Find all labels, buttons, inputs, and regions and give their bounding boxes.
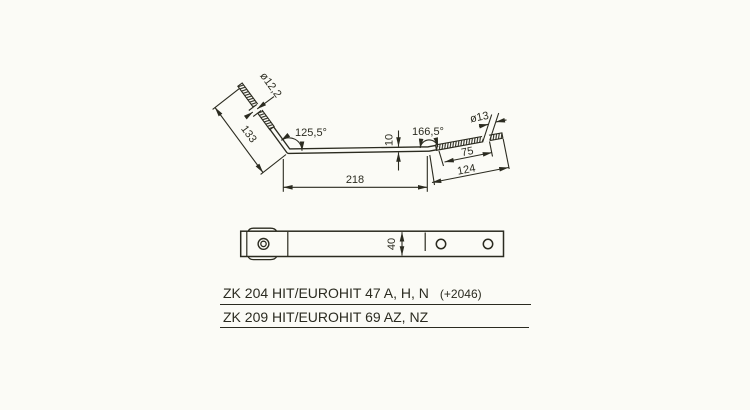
hole-right (483, 239, 492, 248)
dim-label-10: 10 (384, 134, 396, 146)
catalog-line-zk209-text: ZK 209 HIT/EUROHIT 69 AZ, NZ (223, 309, 428, 325)
angle-label-125-5: 125,5° (295, 127, 327, 139)
catalog-line-zk209: ZK 209 HIT/EUROHIT 69 AZ, NZ (220, 310, 529, 328)
drawing-canvas: 133 ø12,2 125,5° 10 218 166,5° (0, 0, 750, 410)
dim-label-dia12-2: ø12,2 (257, 70, 283, 100)
catalog-line-zk204-suffix: (+2046) (440, 287, 482, 301)
catalog-line-zk204: ZK 204 HIT/EUROHIT 47 A, H, N(+2046) (220, 286, 531, 305)
dim-label-dia13: ø13 (469, 110, 490, 125)
dim-label-40: 40 (386, 238, 398, 250)
side-view: 133 ø12,2 125,5° 10 218 166,5° (213, 70, 510, 191)
angle-label-166-5: 166,5° (412, 126, 444, 138)
hole-left (436, 239, 445, 248)
dim-label-75: 75 (460, 145, 474, 159)
part-outline-top (241, 231, 504, 256)
dim-label-133: 133 (238, 123, 259, 145)
catalog-line-zk204-text: ZK 204 HIT/EUROHIT 47 A, H, N (223, 285, 429, 301)
dim-label-218: 218 (346, 174, 364, 186)
technical-drawing-page: { "drawing": { "type": "technical-diagra… (0, 0, 750, 410)
dim-label-124: 124 (456, 162, 476, 177)
top-view: 40 (241, 228, 504, 259)
